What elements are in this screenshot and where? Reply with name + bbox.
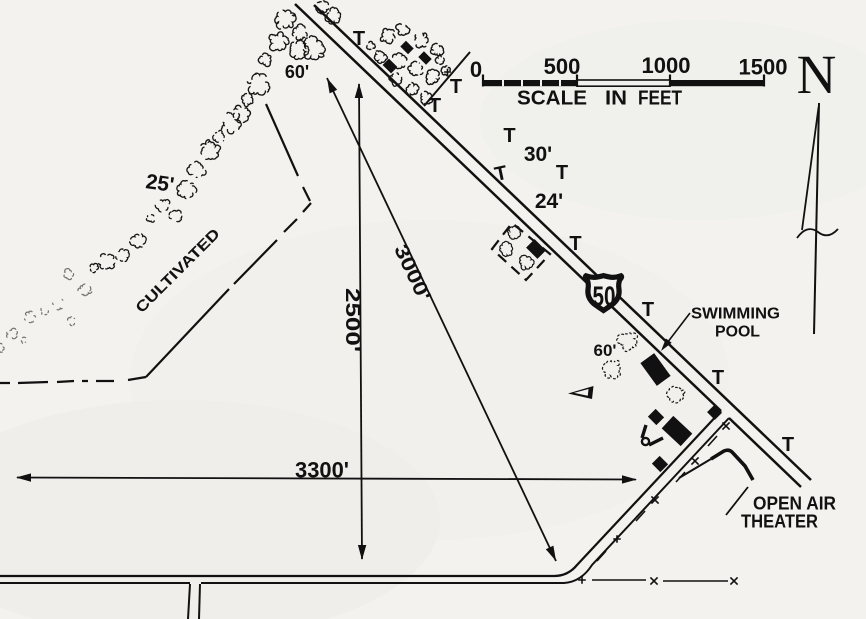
svg-text:T: T xyxy=(642,299,654,321)
svg-text:T: T xyxy=(429,95,441,117)
svg-text:500: 500 xyxy=(544,54,581,79)
svg-text:24': 24' xyxy=(535,190,563,213)
svg-text:T: T xyxy=(712,367,724,389)
svg-text:60': 60' xyxy=(594,341,617,360)
svg-text:0: 0 xyxy=(470,57,482,82)
svg-text:60': 60' xyxy=(285,62,309,82)
svg-text:1000: 1000 xyxy=(642,53,691,78)
svg-text:T: T xyxy=(569,233,581,255)
svg-text:25': 25' xyxy=(144,170,175,197)
svg-text:IN: IN xyxy=(605,88,627,110)
svg-text:30': 30' xyxy=(524,143,552,166)
svg-text:THEATER: THEATER xyxy=(741,512,818,532)
svg-text:N: N xyxy=(797,44,837,105)
svg-text:T: T xyxy=(450,76,462,98)
svg-text:T: T xyxy=(353,28,365,50)
svg-text:1500: 1500 xyxy=(739,55,788,80)
svg-text:POOL: POOL xyxy=(715,324,760,341)
svg-text:FEET: FEET xyxy=(638,88,682,110)
svg-text:SCALE: SCALE xyxy=(517,88,587,110)
svg-text:50: 50 xyxy=(593,281,616,312)
svg-text:T: T xyxy=(503,125,515,147)
svg-text:T: T xyxy=(782,434,794,456)
svg-text:SWIMMING: SWIMMING xyxy=(691,306,780,323)
svg-text:3300': 3300' xyxy=(295,458,349,483)
svg-text:T: T xyxy=(556,162,568,184)
svg-text:2500': 2500' xyxy=(341,288,363,352)
svg-text:OPEN AIR: OPEN AIR xyxy=(753,494,836,514)
